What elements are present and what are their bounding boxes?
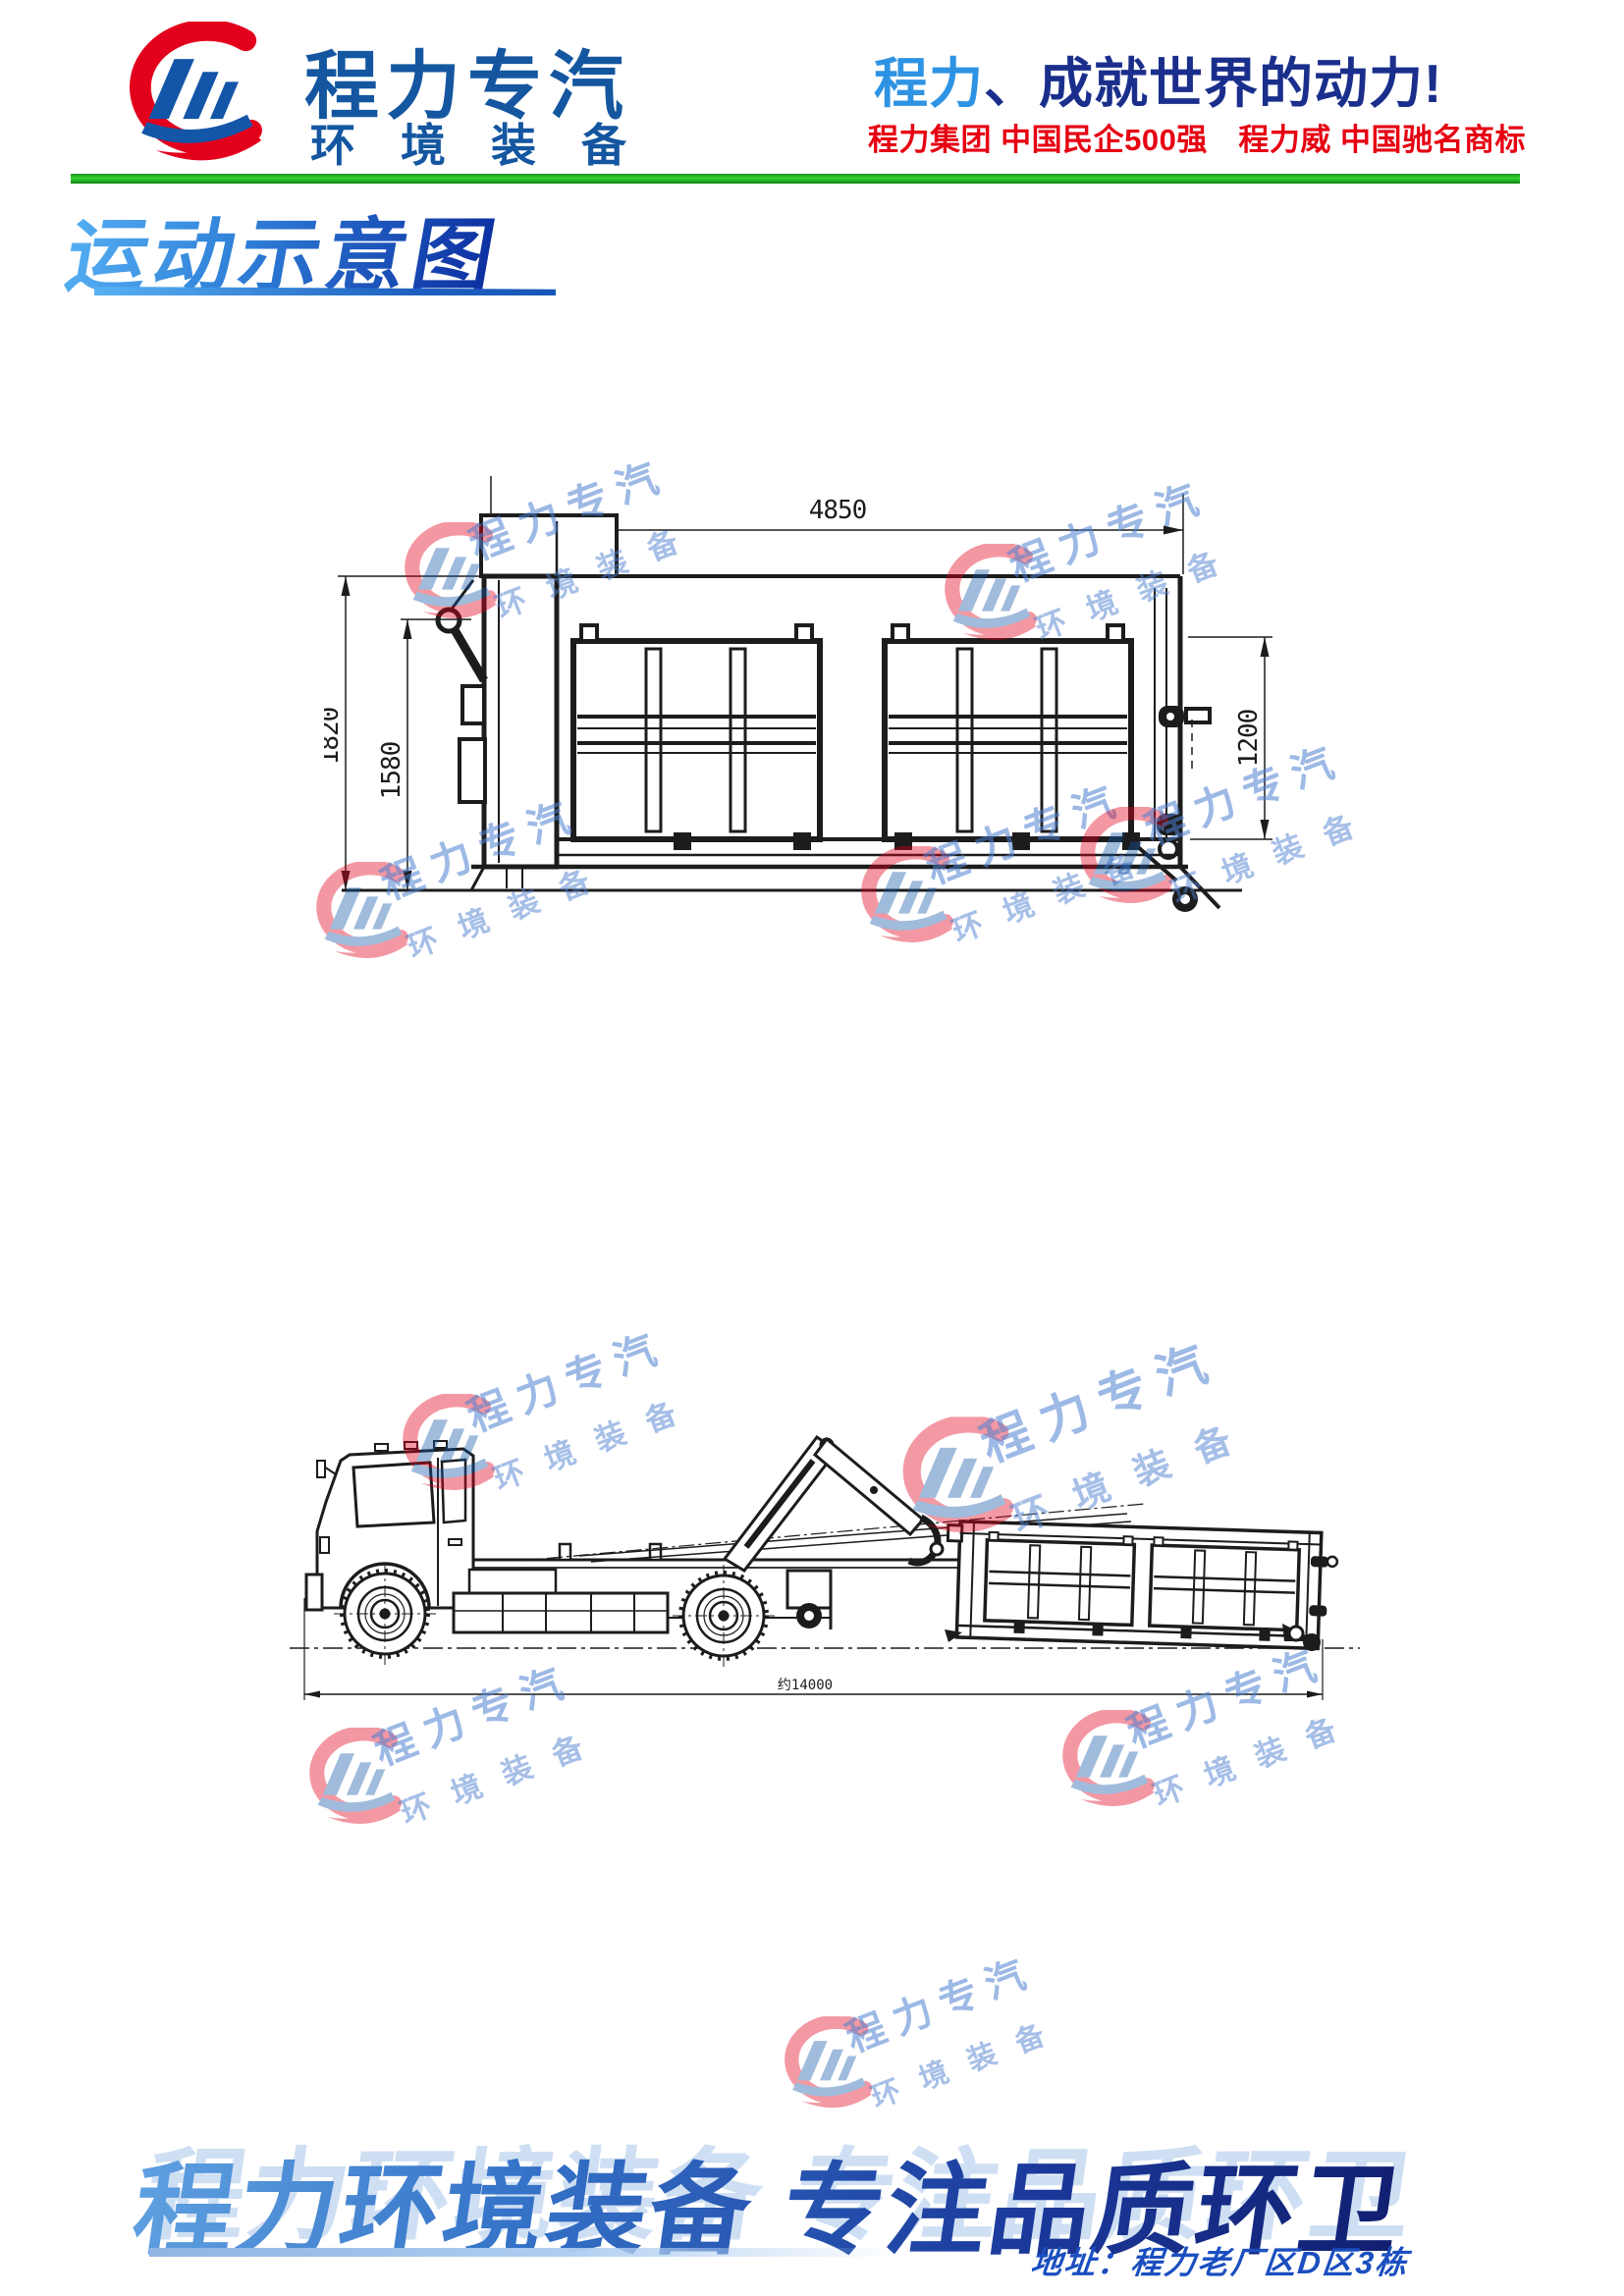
footer-address-value: 程力老厂区D区3栋	[1129, 2245, 1411, 2280]
company-logo-icon	[84, 22, 298, 165]
dim-label-1200: 1200	[1234, 710, 1264, 768]
footer-address-label: 地址：	[1029, 2245, 1133, 2280]
footer: 程力环境装备 专注品质环卫 程力环境装备 专注品质环卫 地址：程力老厂区D区3栋	[0, 2101, 1624, 2296]
dim-label-1820: 1820	[324, 708, 345, 766]
footer-underline	[149, 2248, 897, 2257]
header-slogan: 程力、成就世界的动力!	[874, 39, 1442, 118]
slogan-highlight: 程力	[874, 53, 984, 114]
hooklift-truck-drawing: 约14000	[285, 1412, 1365, 1745]
dim-label-1580: 1580	[377, 742, 406, 800]
slogan-rest: 、成就世界的动力!	[984, 53, 1442, 114]
dim-label-overall-length: 约14000	[778, 1678, 833, 1693]
container-side-view-drawing: 4850 1820 1580 1200	[324, 378, 1286, 947]
footer-address: 地址：程力老厂区D区3栋	[1029, 2238, 1412, 2283]
brand-subtitle: 环境装备	[310, 110, 672, 175]
dim-label-4850: 4850	[809, 496, 867, 525]
header-divider	[71, 174, 1520, 184]
company-honors: 程力集团 中国民企500强 程力威 中国驰名商标	[868, 115, 1526, 159]
